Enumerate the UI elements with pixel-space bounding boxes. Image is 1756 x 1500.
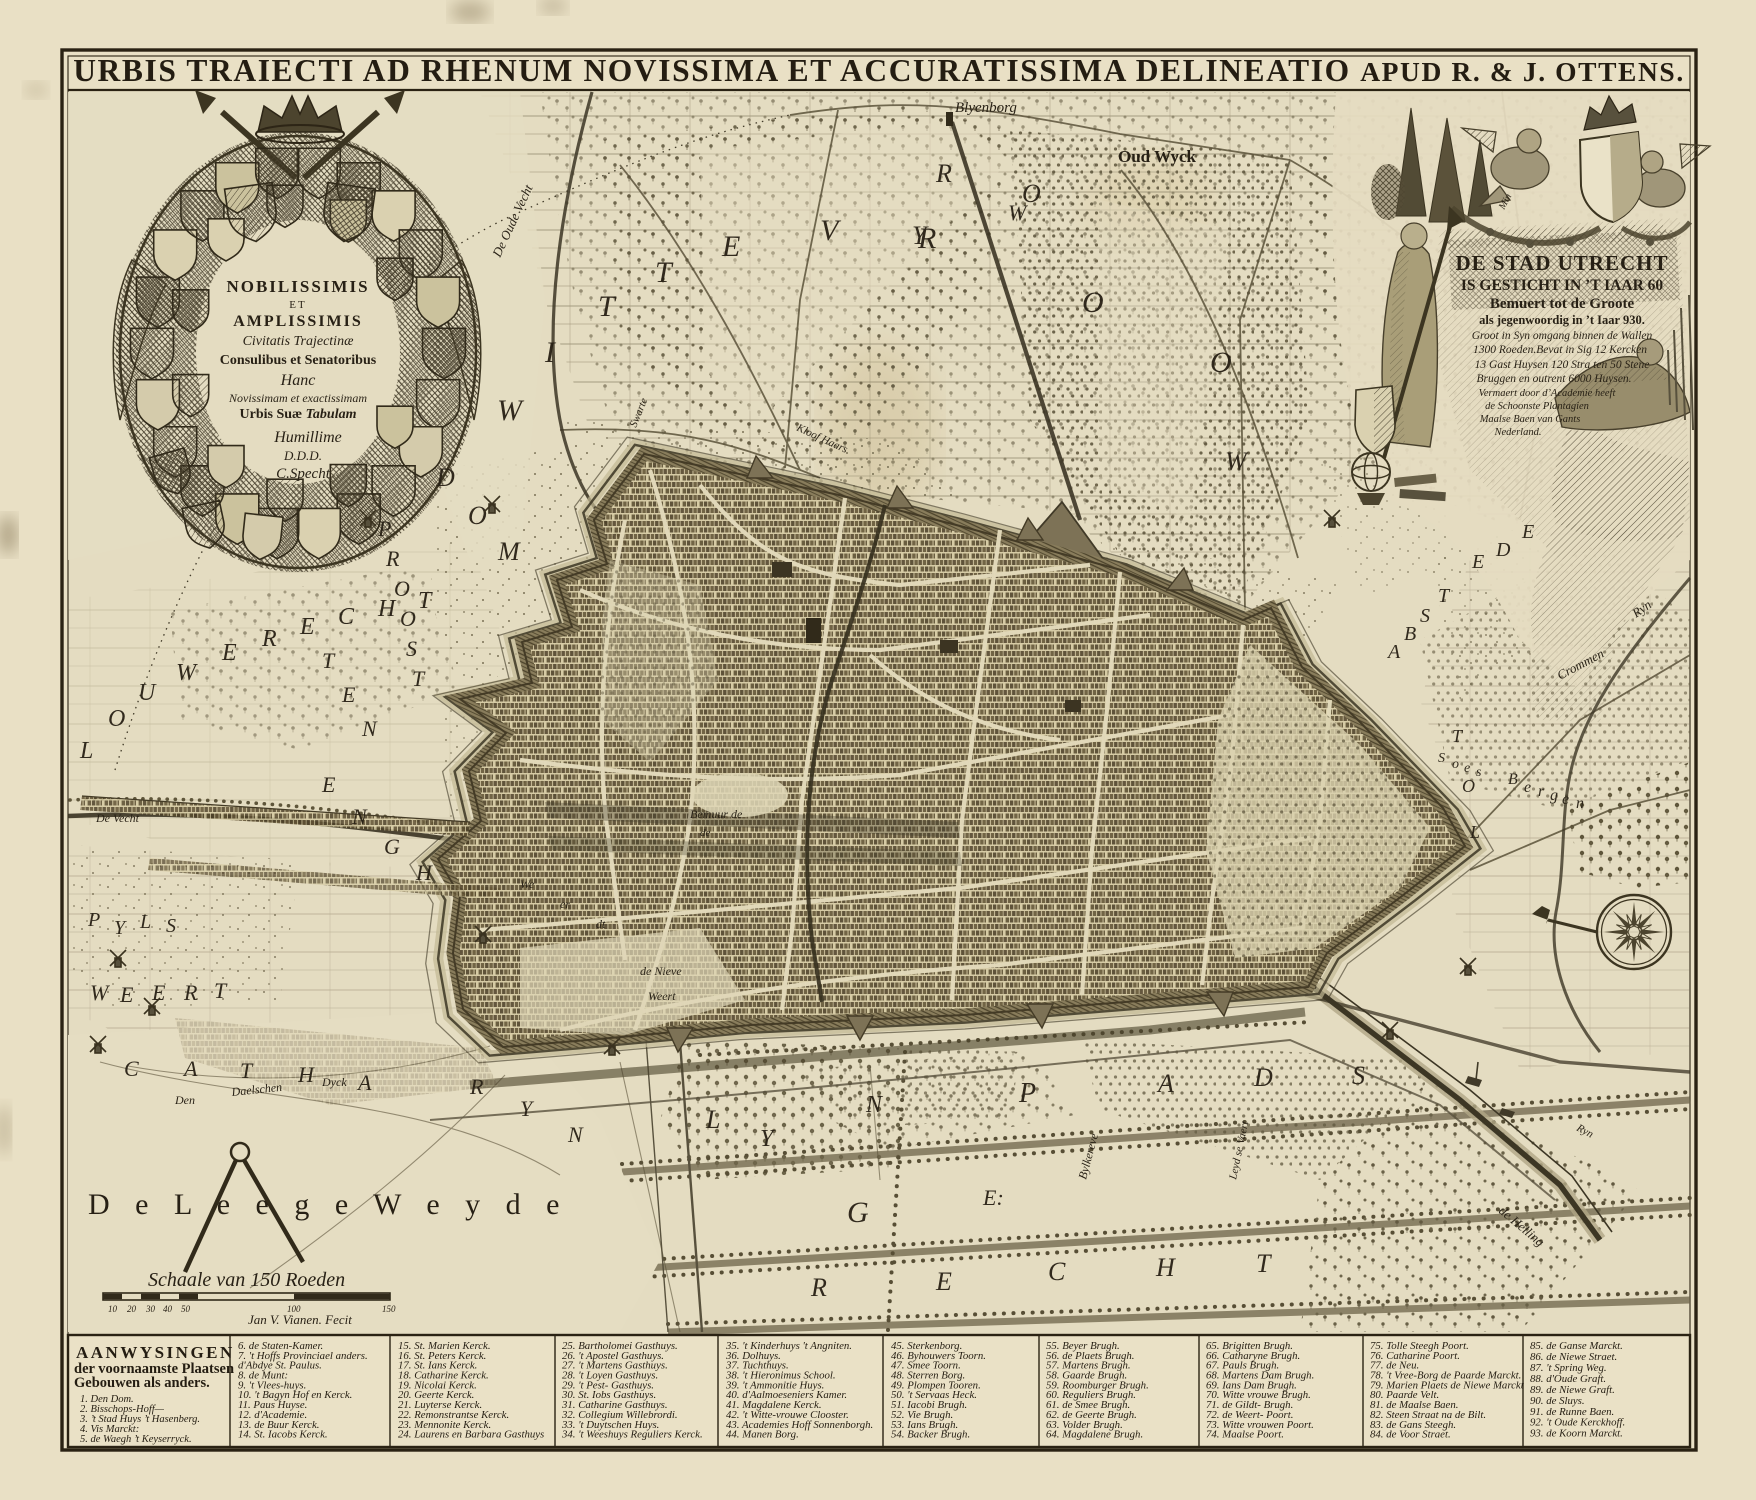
svg-text:24. Laurens en Barbara Gasthuy: 24. Laurens en Barbara Gasthuys xyxy=(398,1429,544,1441)
svg-text:Gebouwen als anders.: Gebouwen als anders. xyxy=(74,1375,210,1391)
svg-text:14. St. Iacobs Kerck.: 14. St. Iacobs Kerck. xyxy=(238,1429,328,1441)
svg-text:64. Magdalene Brugh.: 64. Magdalene Brugh. xyxy=(1046,1429,1143,1441)
svg-text:84. de Voor Straet.: 84. de Voor Straet. xyxy=(1370,1429,1451,1441)
svg-text:34. 't Weeshuys Reguliers Kerc: 34. 't Weeshuys Reguliers Kerck. xyxy=(561,1429,703,1441)
svg-text:AANWYSINGEN: AANWYSINGEN xyxy=(76,1343,235,1362)
svg-text:93. de Koorn Marckt.: 93. de Koorn Marckt. xyxy=(1530,1428,1623,1440)
svg-text:74. Maalse Poort.: 74. Maalse Poort. xyxy=(1206,1429,1284,1441)
svg-text:5. de Waegh ’t Keyserryck.: 5. de Waegh ’t Keyserryck. xyxy=(80,1434,192,1445)
svg-text:44. Manen Borg.: 44. Manen Borg. xyxy=(726,1429,799,1441)
svg-text:URBIS TRAIECTI AD RHENUM NOVIS: URBIS TRAIECTI AD RHENUM NOVISSIMA ET AC… xyxy=(73,53,1685,88)
svg-text:54. Backer Brugh.: 54. Backer Brugh. xyxy=(891,1429,970,1441)
